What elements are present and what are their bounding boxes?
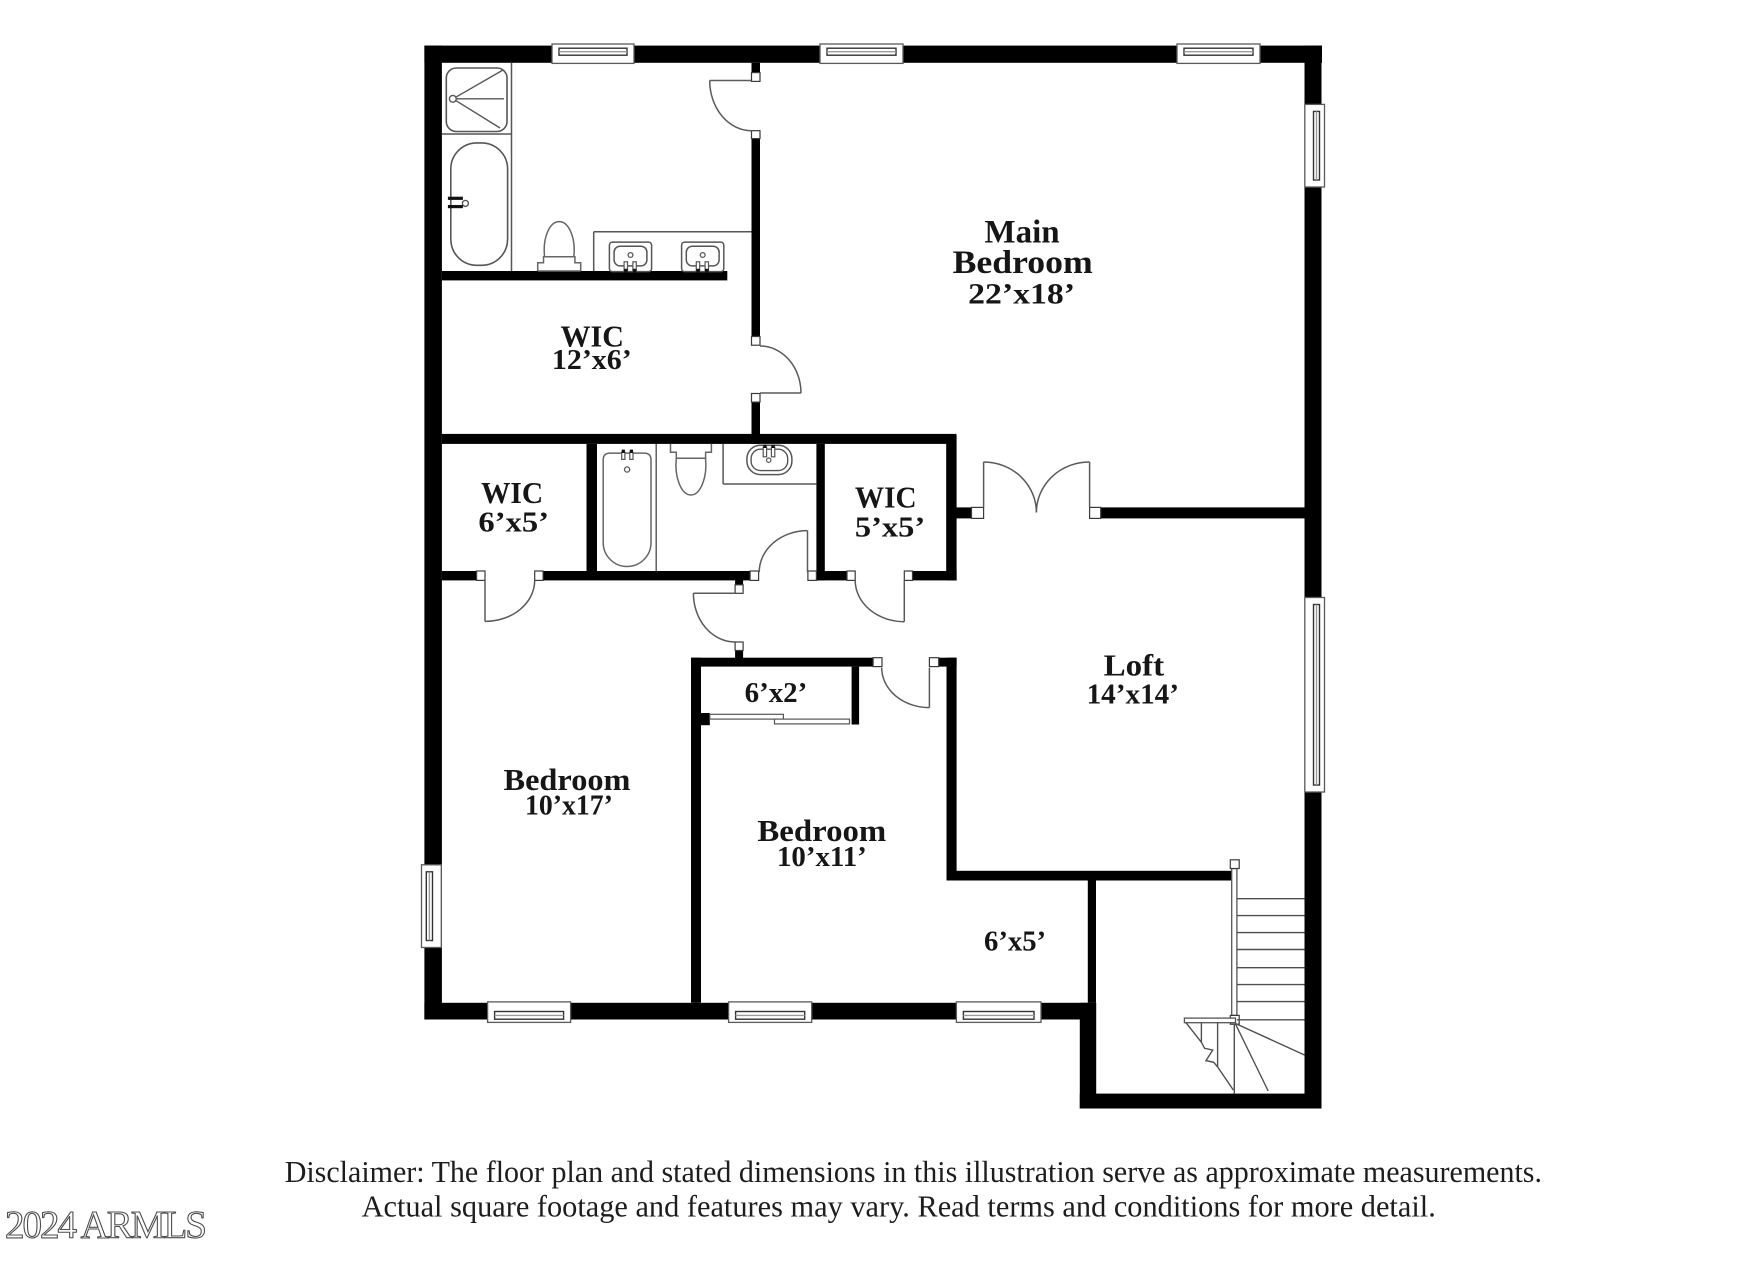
svg-text:22’x18’: 22’x18’ [968, 278, 1075, 311]
svg-text:5’x5’: 5’x5’ [855, 513, 925, 544]
svg-text:Actual square footage and feat: Actual square footage and features may v… [362, 1189, 1436, 1224]
svg-text:12’x6’: 12’x6’ [552, 345, 632, 376]
svg-text:WIC: WIC [855, 481, 917, 515]
svg-text:Bedroom: Bedroom [953, 245, 1093, 281]
svg-text:2024 ARMLS: 2024 ARMLS [5, 1204, 205, 1247]
svg-text:WIC: WIC [481, 476, 543, 510]
svg-text:6’x5’: 6’x5’ [478, 508, 549, 539]
svg-text:Loft: Loft [1104, 649, 1165, 683]
svg-text:6’x2’: 6’x2’ [745, 678, 808, 709]
svg-text:10’x11’: 10’x11’ [777, 842, 867, 873]
svg-text:Disclaimer: The floor plan and: Disclaimer: The floor plan and stated di… [285, 1154, 1542, 1189]
svg-text:10’x17’: 10’x17’ [525, 791, 613, 822]
svg-text:14’x14’: 14’x14’ [1087, 680, 1179, 711]
svg-text:6’x5’: 6’x5’ [984, 927, 1046, 958]
